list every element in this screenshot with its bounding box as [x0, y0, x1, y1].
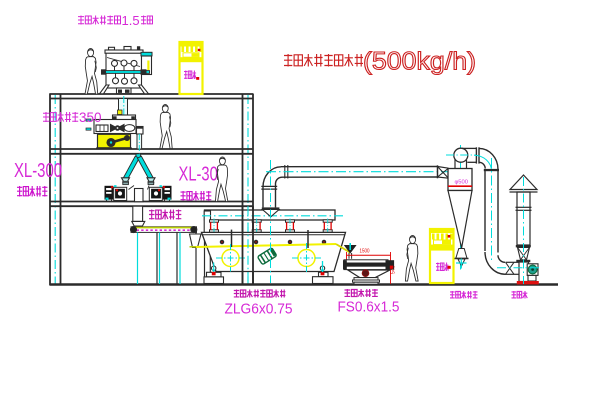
- svg-text:(500kg/h): (500kg/h): [363, 48, 476, 76]
- svg-text:FS0.6x1.5: FS0.6x1.5: [338, 300, 400, 316]
- svg-text:1500: 1500: [360, 248, 370, 254]
- svg-text:1.5: 1.5: [122, 13, 140, 28]
- svg-text:φ500: φ500: [455, 180, 468, 186]
- svg-text:ZLG6x0.75: ZLG6x0.75: [225, 302, 293, 318]
- svg-text:350: 350: [79, 110, 102, 125]
- svg-text:XL-300: XL-300: [14, 160, 62, 182]
